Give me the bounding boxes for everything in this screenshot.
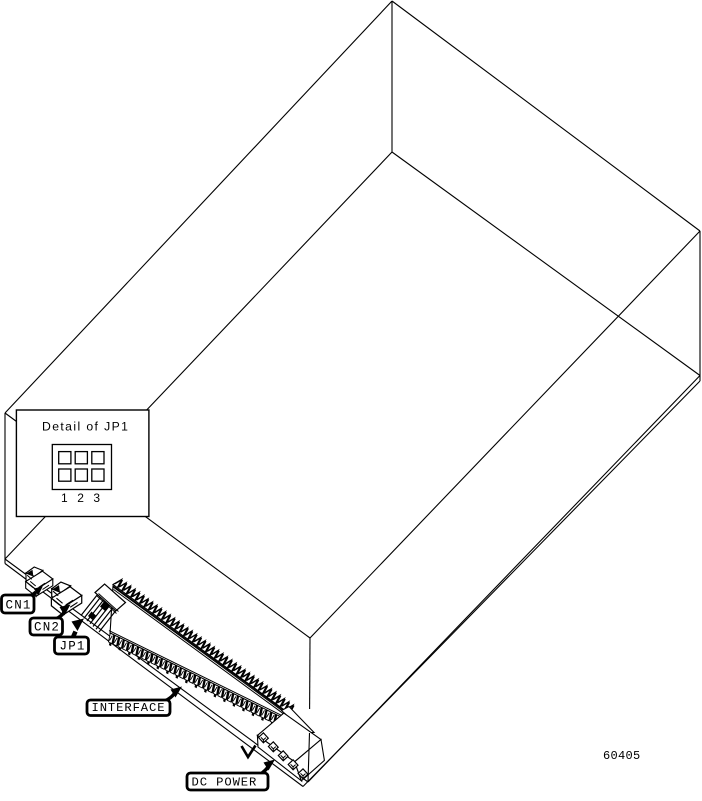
svg-text:DC POWER: DC POWER	[192, 776, 258, 790]
svg-text:60405: 60405	[603, 749, 641, 763]
svg-text:1 2 3: 1 2 3	[61, 491, 103, 505]
svg-text:JP1: JP1	[60, 640, 86, 654]
svg-text:CN2: CN2	[34, 621, 60, 635]
svg-text:INTERFACE: INTERFACE	[92, 701, 166, 715]
svg-text:CN1: CN1	[6, 599, 32, 613]
svg-text:Detail of JP1: Detail of JP1	[42, 420, 129, 434]
